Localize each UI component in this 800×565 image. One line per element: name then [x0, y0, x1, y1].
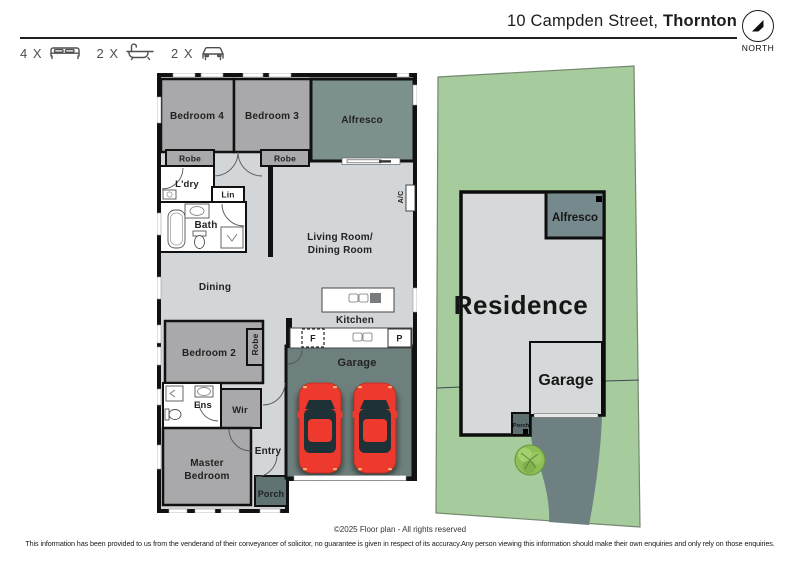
car-icon — [200, 42, 226, 64]
dining-label: Dining — [199, 282, 231, 293]
robe4-label: Robe — [179, 154, 201, 164]
wall-living-divider — [268, 165, 273, 257]
pantry-label: P — [396, 334, 402, 344]
north-label: NORTH — [734, 43, 782, 53]
site-residence-label: Residence — [454, 290, 589, 320]
site-porch-post — [523, 429, 528, 434]
entry-label: Entry — [255, 446, 282, 457]
site-porch-label: Porch — [513, 423, 530, 429]
linen-label: Lin — [221, 190, 234, 200]
laundry-tub — [163, 190, 176, 199]
floorplan-page: { "header": { "address_normal": "10 Camp… — [0, 0, 800, 565]
living-label-2: Dining Room — [308, 245, 372, 256]
bedroom3-label: Bedroom 3 — [245, 111, 299, 122]
tree — [515, 445, 545, 475]
bath-icon — [125, 42, 155, 64]
car-1 — [297, 383, 343, 477]
floor-plan: Bedroom 4 Bedroom 3 Alfresco Robe Robe L… — [157, 73, 417, 513]
master-label-1: Master — [190, 458, 223, 469]
garage-door — [294, 476, 406, 481]
wir-label: Wir — [232, 405, 248, 416]
site-garage-door — [534, 414, 598, 418]
ac-label: A/C — [398, 191, 405, 204]
bedroom2-label: Bedroom 2 — [182, 348, 236, 359]
stat-bedrooms: 4 X — [20, 42, 81, 64]
ac-unit — [406, 185, 415, 211]
living-label-1: Living Room/ — [307, 232, 373, 243]
master-label-2: Bedroom — [184, 471, 229, 482]
disclaimer-text: This information has been provided to us… — [25, 539, 774, 548]
bedroom-count: 4 X — [20, 46, 43, 61]
fridge-label: F — [310, 334, 316, 344]
bathroom-count: 2 X — [97, 46, 120, 61]
kitchen-island — [322, 288, 394, 312]
address-suburb: Thornton — [663, 12, 737, 30]
car-2 — [352, 383, 398, 477]
sliding-door — [342, 158, 400, 165]
site-plan: Residence Alfresco Garage Porch — [425, 58, 660, 538]
robe3-label: Robe — [274, 154, 296, 164]
property-stats: 4 X 2 X 2 X — [20, 42, 226, 64]
copyright-text: ©2025 Floor plan - All rights reserved — [334, 525, 466, 534]
site-alfresco-post — [596, 196, 602, 202]
stat-bathrooms: 2 X — [97, 42, 156, 64]
compass-icon — [742, 10, 774, 42]
laundry-label: L'dry — [175, 179, 199, 190]
site-alfresco-label: Alfresco — [552, 212, 598, 224]
car-count: 2 X — [171, 46, 194, 61]
porch-label: Porch — [258, 489, 285, 499]
kitchen-bench — [290, 328, 412, 348]
bath-label: Bath — [194, 220, 217, 231]
north-indicator: NORTH — [734, 10, 782, 53]
garage-label: Garage — [337, 357, 376, 369]
header-divider — [20, 37, 737, 39]
stat-garages: 2 X — [171, 42, 226, 64]
disclaimer-line: This information has been provided to us… — [0, 539, 800, 548]
copyright-line: ©2025 Floor plan - All rights reserved — [0, 525, 800, 534]
site-garage-label: Garage — [538, 372, 593, 389]
bed-icon — [49, 42, 81, 64]
page-title: 10 Campden Street, Thornton — [507, 12, 737, 31]
address-street: 10 Campden Street, — [507, 12, 663, 30]
alfresco-label: Alfresco — [341, 115, 383, 126]
kitchen-label: Kitchen — [336, 315, 374, 326]
robe2-label: Robe — [250, 333, 260, 355]
ensuite-label: Ens — [194, 400, 212, 411]
bedroom4-label: Bedroom 4 — [170, 111, 224, 122]
